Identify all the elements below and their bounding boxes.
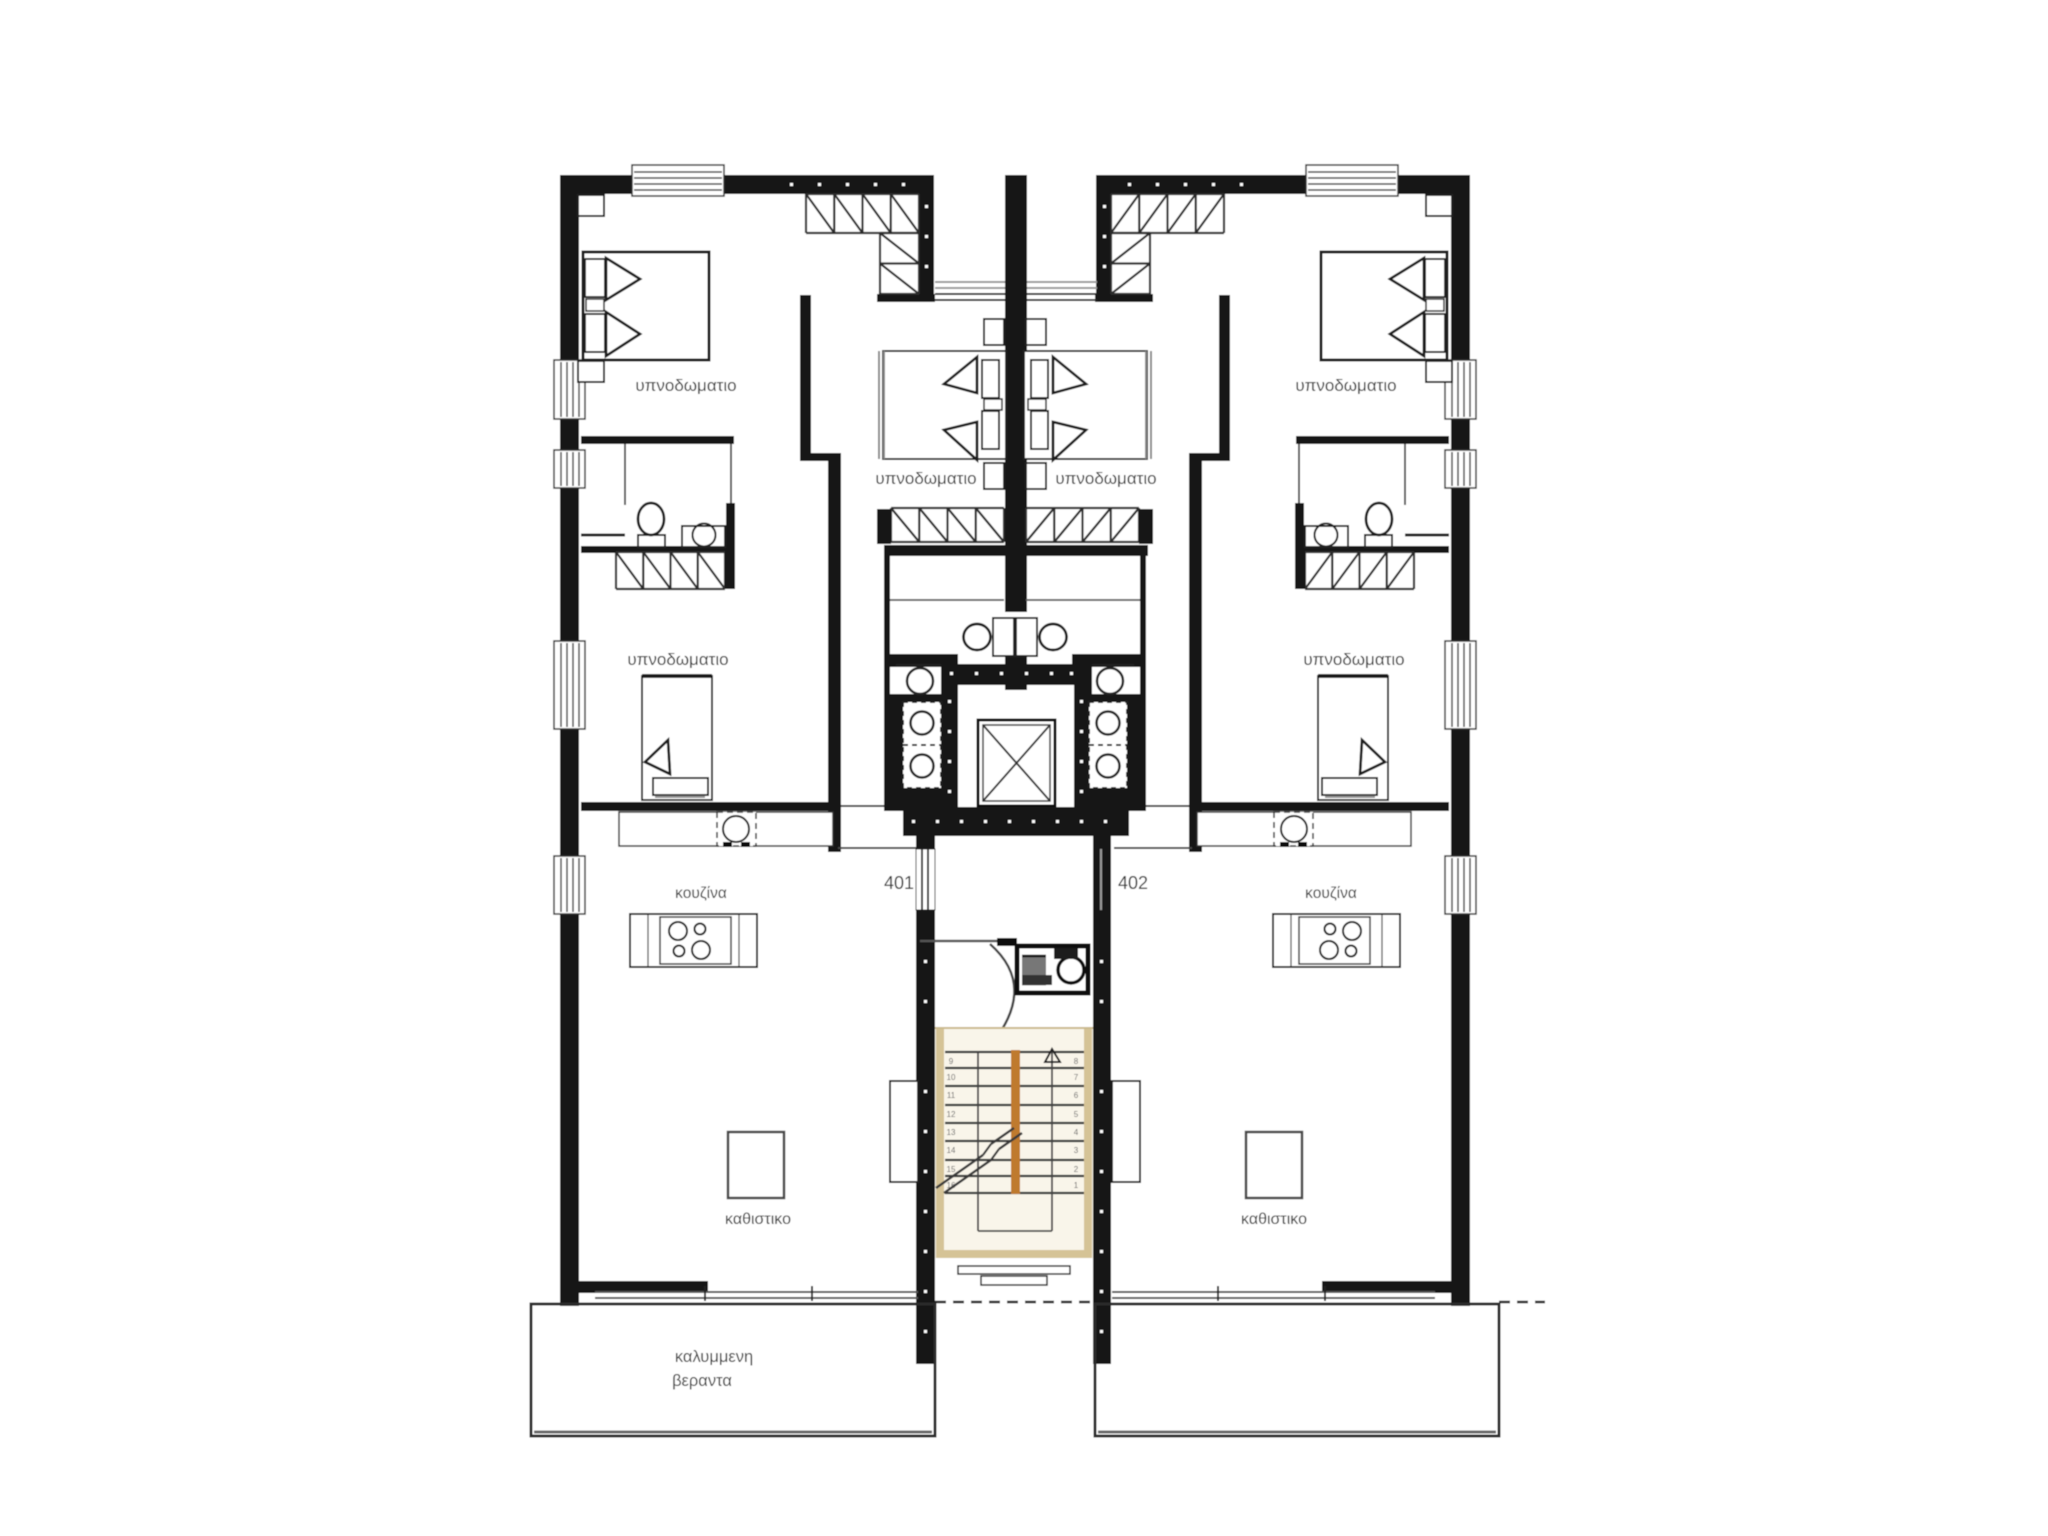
svg-text:401: 401: [884, 873, 914, 893]
svg-text:5: 5: [1074, 1110, 1079, 1119]
svg-text:10: 10: [947, 1073, 956, 1082]
svg-text:καλυμμενη: καλυμμενη: [675, 1348, 753, 1366]
svg-text:4: 4: [1074, 1128, 1079, 1137]
svg-text:402: 402: [1118, 873, 1148, 893]
svg-text:υπνοδωματιο: υπνοδωματιο: [635, 376, 736, 395]
svg-text:κουζίνα: κουζίνα: [675, 885, 727, 902]
svg-text:κουζίνα: κουζίνα: [1305, 885, 1357, 902]
svg-text:υπνοδωματιο: υπνοδωματιο: [1303, 650, 1404, 669]
svg-text:7: 7: [1074, 1073, 1079, 1082]
svg-text:υπνοδωματιο: υπνοδωματιο: [627, 650, 728, 669]
svg-text:υπνοδωματιο: υπνοδωματιο: [1295, 376, 1396, 395]
svg-text:καθιστικο: καθιστικο: [725, 1211, 791, 1228]
svg-text:9: 9: [949, 1057, 954, 1066]
svg-text:12: 12: [947, 1110, 956, 1119]
svg-text:υπνοδωματιο: υπνοδωματιο: [875, 469, 976, 488]
svg-text:1: 1: [1074, 1181, 1079, 1190]
svg-text:15: 15: [947, 1165, 956, 1174]
svg-text:11: 11: [947, 1091, 956, 1100]
svg-text:βεραντα: βεραντα: [672, 1372, 732, 1390]
svg-text:2: 2: [1074, 1165, 1079, 1174]
svg-text:13: 13: [947, 1128, 956, 1137]
svg-text:8: 8: [1074, 1057, 1079, 1066]
svg-text:14: 14: [947, 1146, 956, 1155]
svg-text:καθιστικο: καθιστικο: [1241, 1211, 1307, 1228]
svg-text:υπνοδωματιο: υπνοδωματιο: [1055, 469, 1156, 488]
svg-text:6: 6: [1074, 1091, 1079, 1100]
svg-text:3: 3: [1074, 1146, 1079, 1155]
